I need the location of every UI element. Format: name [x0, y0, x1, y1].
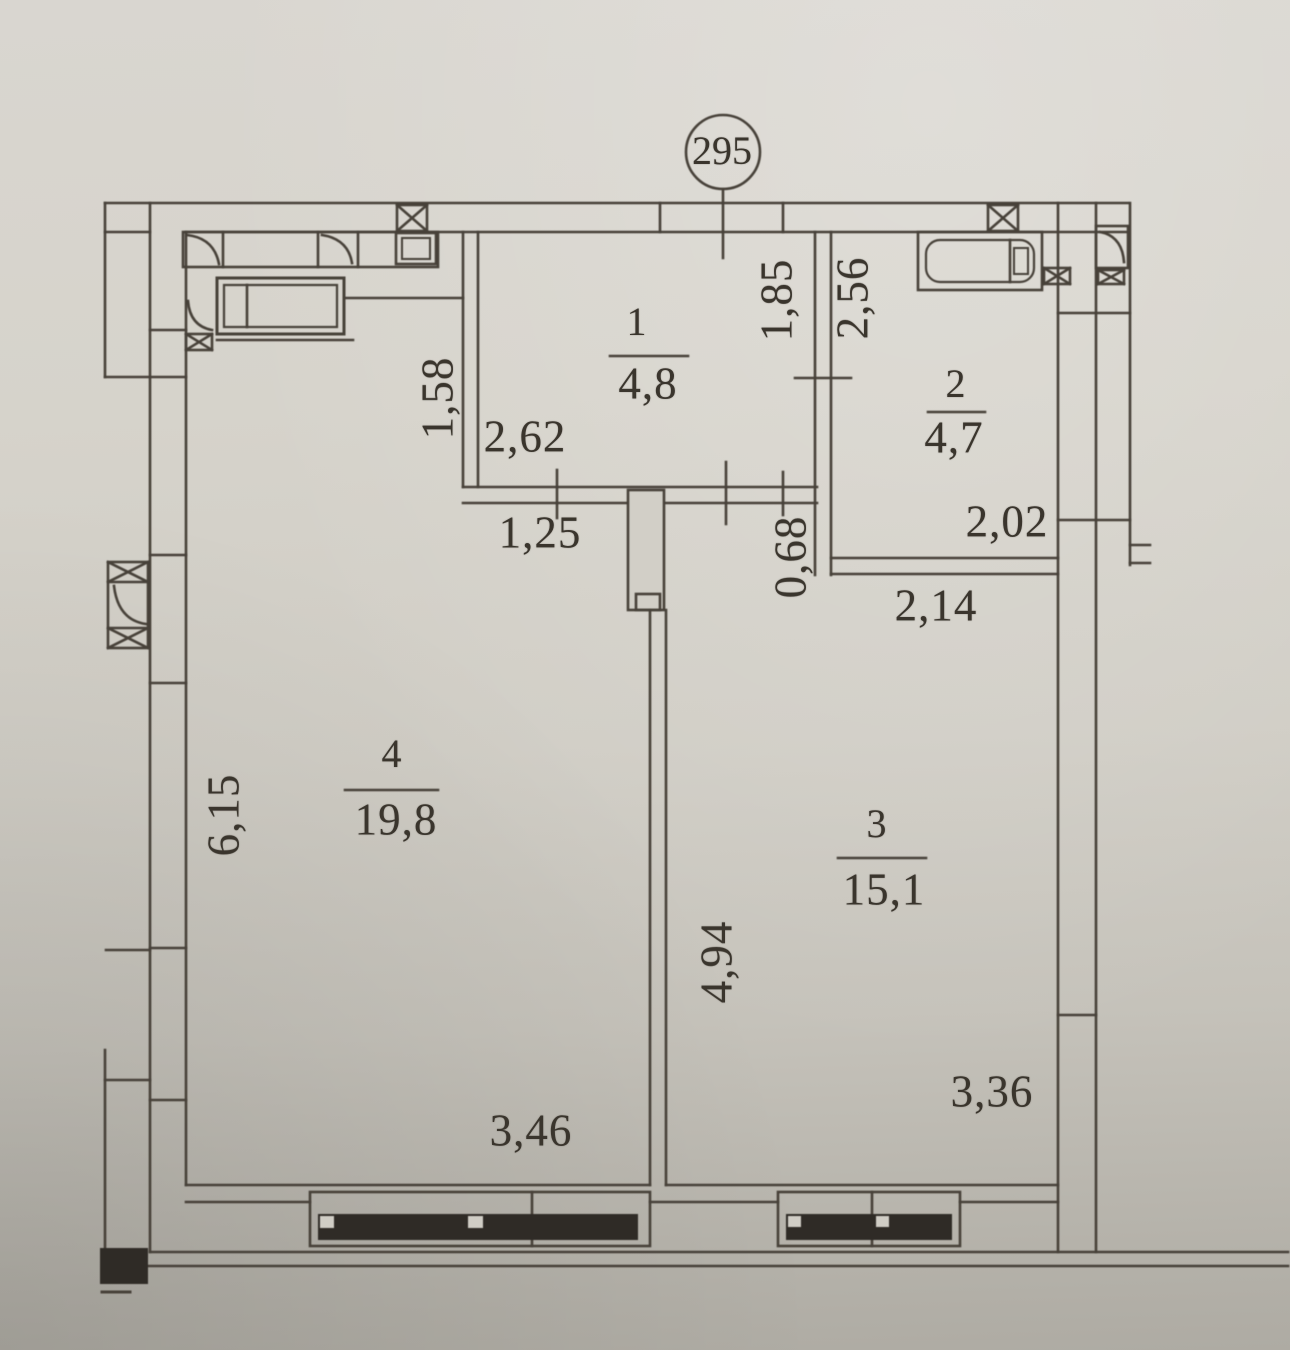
dim-3-46: 3,46: [490, 1109, 573, 1154]
kitchen-counter: [183, 232, 438, 267]
door-swing: [186, 301, 212, 350]
wall-hatch-icon: [397, 205, 1018, 231]
dim-1-25: 1,25: [499, 511, 582, 556]
dim-4-94: 4,94: [695, 921, 740, 1004]
room-1-number: 1: [627, 302, 648, 342]
dim-6-15: 6,15: [202, 774, 247, 857]
room-3-number: 3: [867, 804, 888, 844]
dim-2-56: 2,56: [831, 257, 876, 340]
dim-3-36: 3,36: [951, 1070, 1034, 1115]
room-4-area: 19,8: [355, 798, 438, 843]
floor-plan: 295 1 4,8 2 4,7 3 15,1 4 19,8 2,62 1,25 …: [0, 0, 1290, 1350]
window-room4: [310, 1192, 650, 1246]
room-3-area: 15,1: [843, 868, 926, 913]
floor-plan-drawing: [0, 0, 1290, 1350]
dim-0-68: 0,68: [769, 516, 814, 599]
wall-section-block: [100, 1248, 148, 1284]
axis-marker-label: 295: [692, 131, 752, 171]
dim-1-85: 1,85: [755, 259, 800, 342]
dim-1-58: 1,58: [416, 357, 461, 440]
room-1-area: 4,8: [618, 362, 677, 407]
room-2-area: 4,7: [924, 416, 983, 461]
bathtub: [918, 232, 1042, 290]
dim-2-02: 2,02: [966, 500, 1049, 545]
room-2-number: 2: [946, 364, 967, 404]
dim-2-62: 2,62: [484, 415, 567, 460]
sink-niche: [1096, 226, 1128, 284]
partition-pillar: [628, 490, 664, 610]
room-4-number: 4: [382, 734, 403, 774]
bed: [217, 278, 353, 340]
left-wall-window: [108, 562, 148, 648]
dim-2-14: 2,14: [895, 584, 978, 629]
window-room3: [778, 1192, 960, 1246]
